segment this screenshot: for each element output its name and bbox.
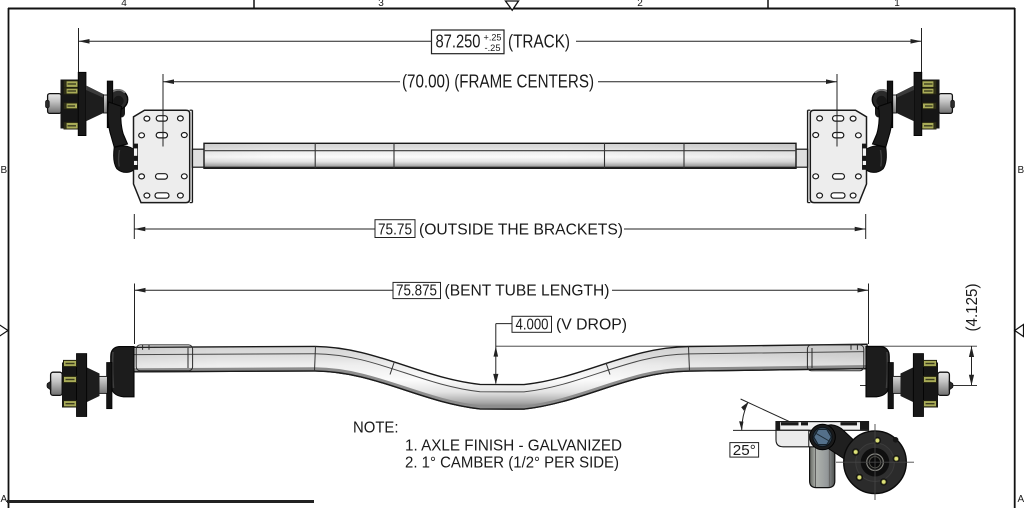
svg-text:87.250: 87.250 <box>436 32 481 52</box>
svg-text:(4.125): (4.125) <box>964 284 981 332</box>
svg-text:NOTE:: NOTE: <box>353 420 399 437</box>
svg-text:(BENT TUBE LENGTH): (BENT TUBE LENGTH) <box>445 283 610 300</box>
svg-text:25°: 25° <box>733 442 756 459</box>
svg-text:+.25: +.25 <box>484 33 502 44</box>
svg-text:(TRACK): (TRACK) <box>508 32 570 52</box>
svg-text:B: B <box>1018 165 1024 176</box>
svg-text:75.75: 75.75 <box>378 221 412 238</box>
svg-text:2: 2 <box>637 0 643 9</box>
svg-text:1. AXLE FINISH - GALVANIZED: 1. AXLE FINISH - GALVANIZED <box>405 438 622 455</box>
svg-text:(OUTSIDE THE BRACKETS): (OUTSIDE THE BRACKETS) <box>419 221 623 238</box>
svg-text:4.000: 4.000 <box>516 317 549 334</box>
svg-text:2. 1° CAMBER (1/2° PER SIDE): 2. 1° CAMBER (1/2° PER SIDE) <box>405 455 619 472</box>
svg-text:4: 4 <box>121 0 127 9</box>
svg-text:A: A <box>1 494 8 505</box>
svg-text:3: 3 <box>378 0 384 9</box>
svg-text:75.875: 75.875 <box>396 283 437 300</box>
svg-text:(V DROP): (V DROP) <box>556 317 627 334</box>
svg-text:(70.00) (FRAME CENTERS): (70.00) (FRAME CENTERS) <box>402 72 594 92</box>
svg-text:B: B <box>1 165 8 176</box>
svg-text:1: 1 <box>894 0 900 9</box>
svg-text:-.25: -.25 <box>485 43 501 54</box>
svg-text:A: A <box>1018 494 1024 505</box>
